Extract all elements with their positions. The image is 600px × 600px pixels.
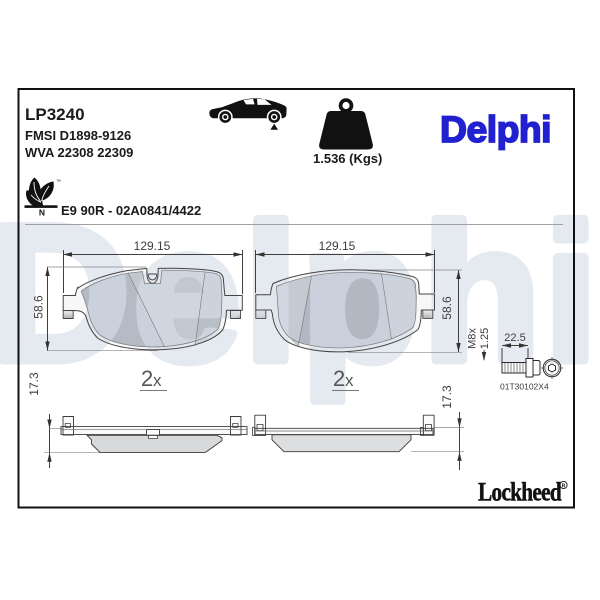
- svg-text:2: 2: [333, 366, 345, 391]
- svg-text:17.3: 17.3: [440, 385, 454, 409]
- svg-text:x: x: [153, 371, 162, 390]
- svg-text:™: ™: [56, 179, 61, 185]
- svg-text:01T30102X4: 01T30102X4: [500, 382, 549, 392]
- svg-text:Lockheed: Lockheed: [478, 479, 562, 507]
- svg-text:17.3: 17.3: [27, 372, 41, 396]
- svg-text:N: N: [39, 208, 45, 218]
- svg-text:2: 2: [141, 366, 153, 391]
- svg-text:M8x: M8x: [467, 328, 479, 349]
- svg-text:58.6: 58.6: [32, 295, 46, 319]
- svg-text:58.6: 58.6: [440, 296, 454, 320]
- svg-text:R: R: [562, 483, 566, 489]
- svg-text:x: x: [345, 371, 354, 390]
- svg-text:22.5: 22.5: [504, 332, 525, 344]
- svg-text:129.15: 129.15: [134, 239, 171, 253]
- svg-text:1.25: 1.25: [479, 328, 491, 349]
- svg-text:129.15: 129.15: [319, 239, 356, 253]
